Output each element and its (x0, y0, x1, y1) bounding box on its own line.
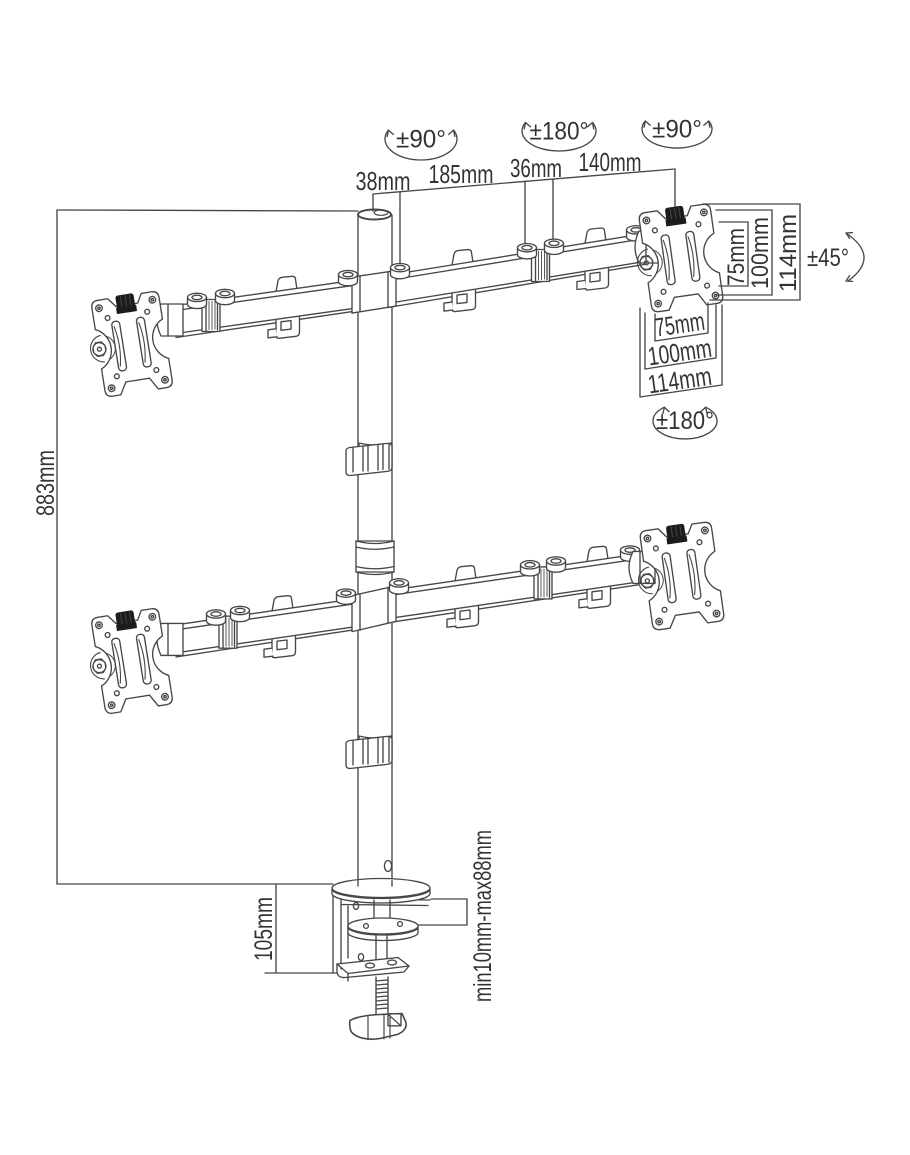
svg-text:105mm: 105mm (250, 897, 278, 961)
svg-text:38mm: 38mm (356, 166, 411, 196)
svg-text:140mm: 140mm (579, 147, 642, 177)
svg-text:±180°: ±180° (656, 407, 714, 435)
svg-text:114mm: 114mm (775, 214, 802, 292)
svg-text:883mm: 883mm (32, 450, 60, 516)
svg-text:min10mm-max88mm: min10mm-max88mm (469, 830, 497, 1002)
svg-text:36mm: 36mm (510, 153, 562, 183)
svg-text:±90°: ±90° (396, 125, 446, 153)
svg-text:100mm: 100mm (747, 217, 774, 289)
svg-text:75mm: 75mm (723, 228, 750, 286)
svg-text:±90°: ±90° (652, 115, 702, 143)
svg-text:±180°: ±180° (530, 117, 589, 145)
svg-text:±45°: ±45° (807, 244, 849, 272)
svg-text:185mm: 185mm (429, 159, 494, 189)
